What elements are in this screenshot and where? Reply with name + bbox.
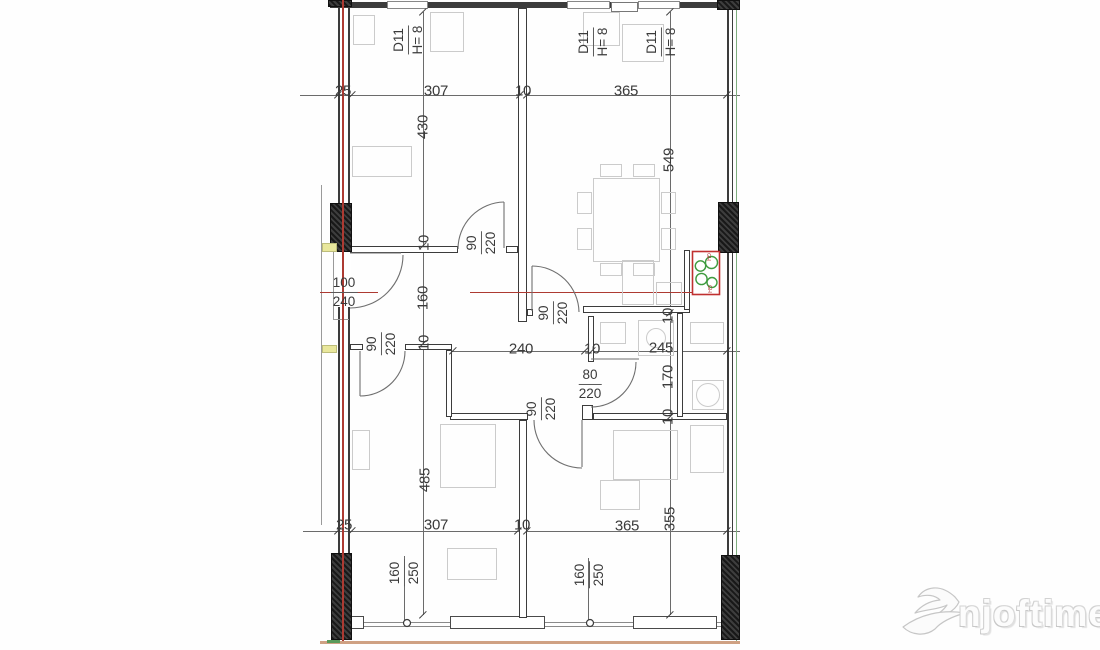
stove-label-bottom: GH: [706, 285, 711, 293]
dim-fraction-label: 90220: [464, 232, 498, 255]
furniture-outline: [577, 228, 592, 250]
door-swing-overlay: [0, 0, 1100, 650]
furniture-outline: [440, 424, 496, 488]
dim-label: 10: [584, 342, 600, 357]
dim-label: 245: [649, 341, 673, 356]
dim-fraction-top: 160: [572, 562, 590, 589]
window-frame: [350, 616, 364, 629]
dim-label: 240: [509, 342, 533, 357]
furniture-outline: [600, 480, 640, 510]
dim-fraction-bottom: 220: [579, 385, 602, 402]
dim-fraction-label: 160250: [572, 562, 606, 589]
furniture-outline: [600, 322, 626, 344]
dim-label: 25: [335, 84, 351, 99]
dim-label: 10: [417, 335, 432, 351]
dim-fraction-label: D11H= 8: [576, 28, 610, 57]
wall-bathroom-right: [677, 313, 683, 417]
furniture-outline: [661, 228, 676, 250]
dim-fraction-label: 90220: [524, 398, 558, 421]
dim-fraction-bottom: 250: [405, 560, 422, 587]
dim-fraction-label: 160250: [387, 560, 421, 587]
furniture-outline: [430, 12, 464, 52]
dim-fraction-label: 90220: [536, 302, 570, 325]
dim-fraction-bottom: 250: [590, 562, 607, 589]
dim-fraction-bottom: 220: [542, 398, 559, 421]
dimension-tick: [419, 611, 427, 619]
dim-fraction-top: 90: [464, 232, 482, 255]
furniture-outline: [593, 178, 660, 262]
dim-fraction-label: 90220: [364, 333, 398, 356]
column: [721, 555, 740, 640]
wall-room1-bottom: [350, 246, 458, 253]
dim-fraction-bottom: H= 8: [594, 28, 611, 57]
wall-step-line: [333, 319, 349, 320]
wall-stub: [350, 344, 363, 350]
dim-fraction-top: D11: [644, 28, 662, 57]
fixture-circle: [696, 383, 720, 407]
furniture-outline: [352, 430, 370, 470]
floor-plan-canvas: GH GH 2530710365430101601048554910170103…: [0, 0, 1100, 650]
furniture-outline: [690, 425, 724, 473]
dim-label: 25: [336, 518, 352, 533]
dim-fraction-top: 90: [536, 302, 554, 325]
dim-fraction-bottom: 240: [331, 293, 358, 310]
dim-fraction-label: D11H= 8: [391, 26, 425, 55]
furniture-outline: [633, 164, 655, 177]
furniture-outline: [353, 15, 375, 45]
dim-fraction-bottom: 220: [554, 302, 571, 325]
dim-fraction-top: D11: [391, 26, 409, 55]
dim-label: 10: [515, 84, 531, 99]
furniture-outline: [577, 192, 592, 214]
dim-fraction-bottom: 220: [382, 333, 399, 356]
dim-label: 160: [416, 286, 431, 310]
dim-fraction-label: D11H= 8: [644, 28, 678, 57]
dim-label: 10: [661, 409, 676, 425]
dim-fraction-top: 100: [331, 275, 358, 293]
furniture-outline: [613, 430, 678, 480]
furniture-outline: [661, 192, 676, 214]
wall-hall-bottom: [450, 413, 528, 420]
dim-fraction-bottom: H= 8: [409, 26, 426, 55]
wall-stub: [582, 405, 593, 420]
dim-fraction-top: D11: [576, 28, 594, 57]
column: [718, 202, 739, 253]
dim-fraction-top: 90: [364, 333, 382, 356]
furniture-outline: [600, 263, 622, 276]
wall-kitchen-counter: [684, 250, 690, 310]
window-opening: [387, 1, 428, 9]
dim-label: 307: [424, 518, 448, 533]
column: [328, 0, 352, 7]
column: [717, 0, 740, 10]
dim-label: 10: [661, 308, 676, 324]
dim-label: 549: [662, 148, 677, 172]
wall-right-exterior: [732, 2, 734, 640]
window-frame: [450, 616, 545, 629]
window-opening: [567, 1, 610, 9]
dim-label: 10: [417, 235, 432, 251]
dim-label: 430: [416, 115, 431, 139]
yellow-mark: [322, 243, 337, 252]
green-boundary-line: [736, 4, 738, 641]
furniture-outline: [622, 260, 654, 305]
dim-label: 365: [614, 84, 638, 99]
furniture-outline: [447, 548, 497, 580]
dim-label: 10: [514, 518, 530, 533]
dim-label: 307: [424, 84, 448, 99]
wall-notch: [611, 2, 638, 12]
dim-fraction-top: 80: [579, 367, 602, 385]
stove-label-top: GH: [705, 253, 710, 261]
dim-fraction-label: 80220: [579, 367, 602, 401]
baseline-tan: [320, 641, 740, 644]
margin-line: [321, 185, 322, 525]
dim-label: 365: [615, 519, 639, 534]
furniture-outline: [656, 282, 682, 305]
yellow-mark: [322, 345, 337, 353]
dim-fraction-top: 160: [387, 560, 405, 587]
wall-stub: [506, 246, 518, 253]
window-frame: [633, 616, 717, 629]
dim-label: 485: [418, 468, 433, 492]
dim-label: 355: [663, 507, 678, 531]
dim-fraction-label: 100240: [331, 275, 358, 309]
wall-room3-right: [446, 350, 452, 417]
wall-right-exterior: [727, 2, 729, 640]
furniture-outline: [600, 164, 622, 177]
furniture-outline: [690, 322, 724, 344]
watermark-text: njoftime.al: [958, 593, 1100, 635]
dim-fraction-top: 90: [524, 398, 542, 421]
wall-central-vertical: [518, 8, 527, 322]
dim-fraction-bottom: H= 8: [662, 28, 679, 57]
dim-fraction-bottom: 220: [482, 232, 499, 255]
dim-label: 170: [661, 365, 676, 389]
furniture-outline: [352, 146, 412, 177]
wall-stub: [527, 309, 533, 316]
